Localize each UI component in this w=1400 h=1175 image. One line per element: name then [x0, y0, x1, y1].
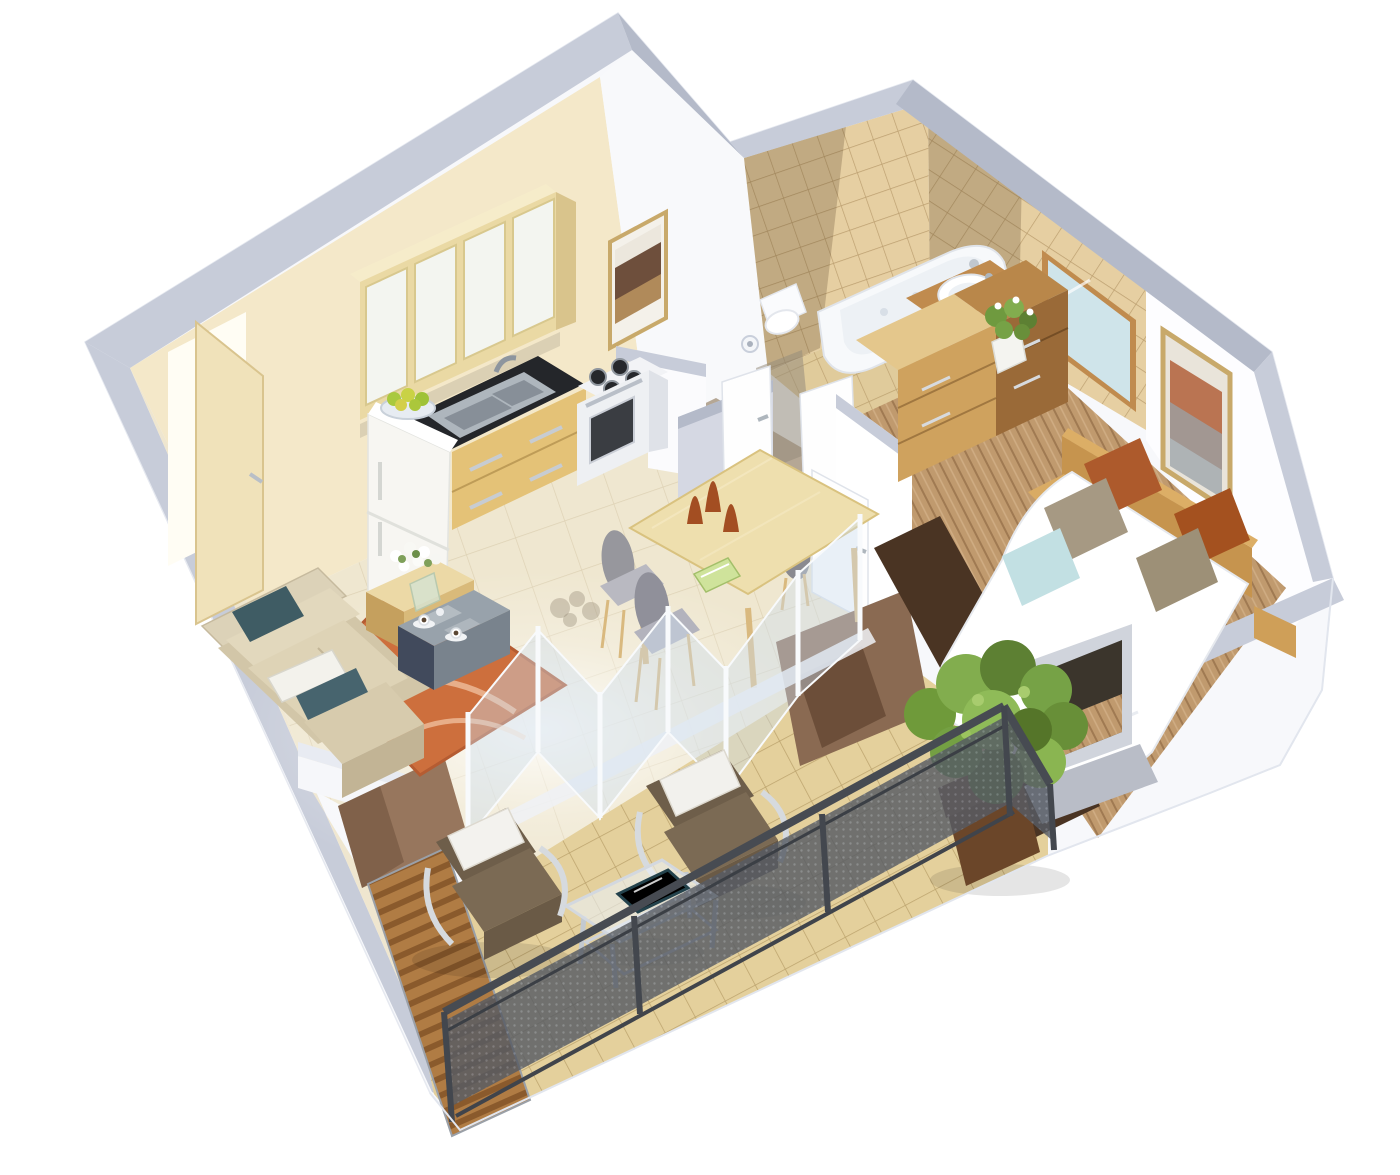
foliage [995, 321, 1013, 339]
frosted-door [464, 222, 505, 359]
leaf [424, 559, 432, 567]
sugar-bowl [436, 608, 444, 616]
burner [590, 369, 606, 385]
burner [612, 359, 628, 375]
leaf [412, 550, 420, 558]
leaf-dot [1018, 686, 1030, 698]
cabinet-side [556, 192, 576, 330]
shadow-blob [563, 613, 577, 627]
frosted-door [366, 268, 407, 405]
tub-jet [880, 308, 888, 316]
floorplan-render [0, 0, 1400, 1175]
sconce-dot [747, 341, 753, 347]
floorplan-svg [0, 0, 1400, 1175]
entry-door-leaf [196, 322, 263, 624]
coffee [422, 618, 427, 623]
coffee [454, 631, 459, 636]
white-bloom [1013, 297, 1020, 304]
shadow-blob [569, 591, 585, 607]
white-bloom [995, 303, 1002, 310]
flower [431, 554, 442, 565]
white-bloom [1027, 309, 1034, 316]
leaf-dot [972, 694, 984, 706]
frosted-door [415, 245, 456, 382]
apple [409, 399, 421, 411]
frosted-door [513, 199, 554, 336]
stove-side [649, 370, 668, 452]
shadow-blob [582, 602, 600, 620]
apple [395, 399, 407, 411]
wall-sconce [742, 336, 758, 352]
leaf [398, 555, 406, 563]
foliage [1014, 324, 1030, 340]
railing-post [1050, 784, 1054, 850]
